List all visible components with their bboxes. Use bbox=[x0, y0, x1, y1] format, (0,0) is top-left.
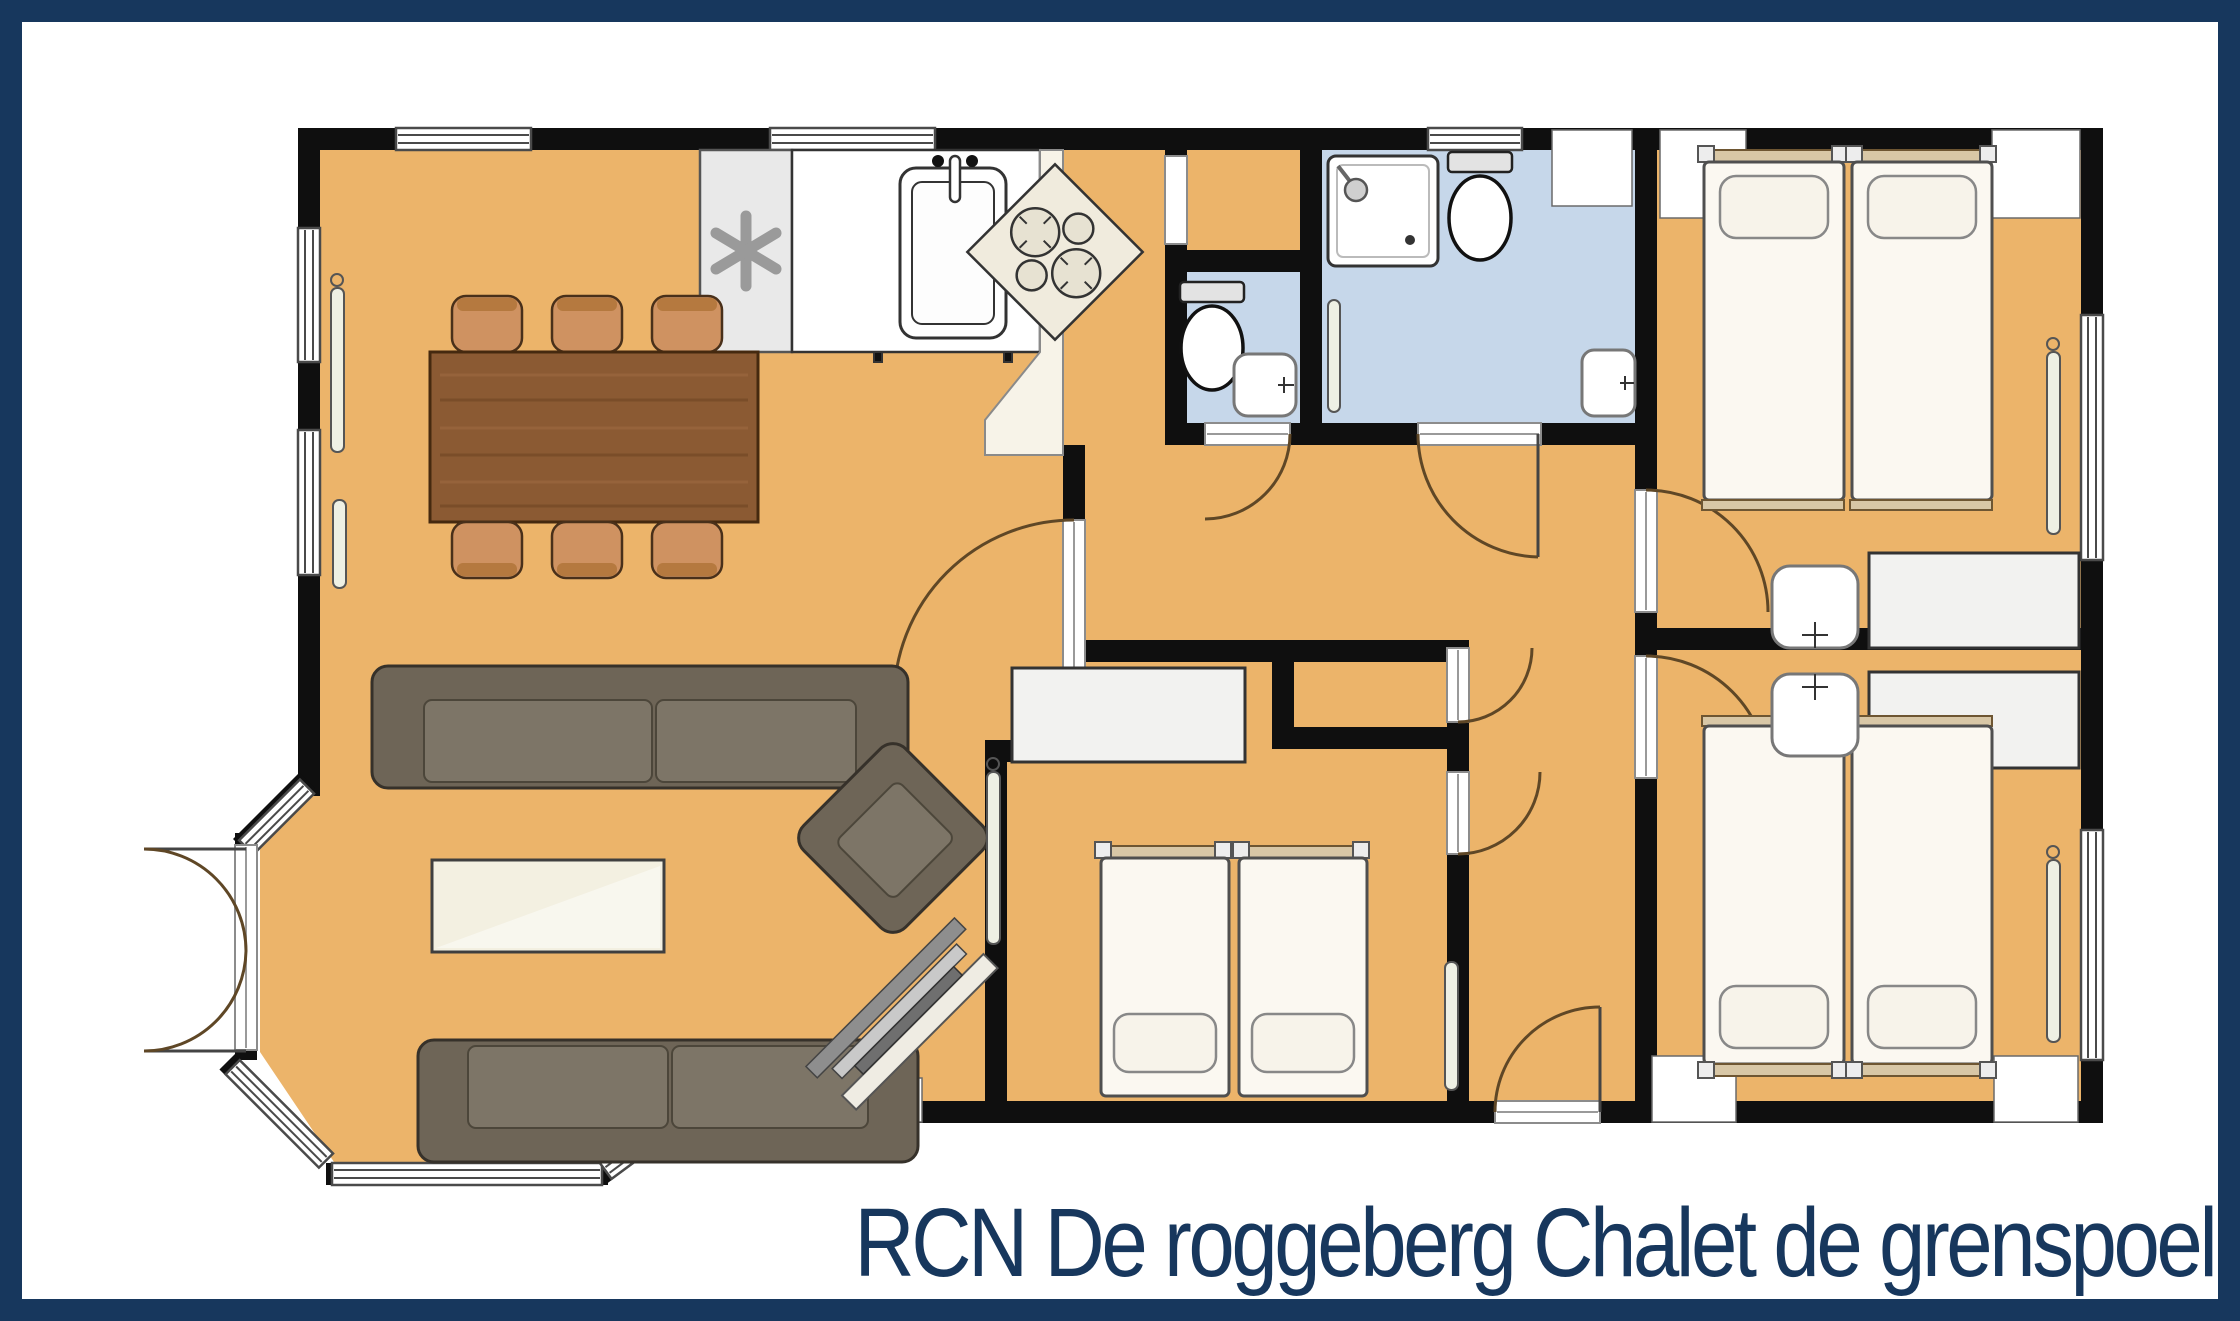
window-top-2 bbox=[770, 128, 935, 150]
inset-bedroom2-right bbox=[1994, 1056, 2078, 1122]
radiator bbox=[2047, 352, 2060, 534]
radiator bbox=[987, 772, 1000, 944]
floor-plan-drawing bbox=[0, 0, 2240, 1321]
bed bbox=[1233, 842, 1369, 1096]
bed bbox=[1698, 146, 1848, 510]
dining-chairs-top bbox=[452, 296, 722, 352]
bed bbox=[1698, 716, 1848, 1078]
bathroom-radiator bbox=[1328, 300, 1340, 412]
dining-chairs-bottom bbox=[452, 522, 722, 578]
floor-plan-page: RCN De roggeberg Chalet de grenspoel bbox=[0, 0, 2240, 1321]
bed bbox=[1846, 146, 1996, 510]
dining-table bbox=[430, 352, 758, 522]
wardrobe bbox=[1869, 553, 2079, 648]
window-right-bedroom1 bbox=[2081, 315, 2103, 560]
toilet2-tank bbox=[1448, 152, 1512, 172]
bathroom-washbasin bbox=[1582, 350, 1635, 416]
radiator bbox=[333, 500, 346, 588]
inset-bedroom1-right bbox=[1992, 130, 2080, 218]
window-bathroom bbox=[1428, 128, 1522, 150]
bed bbox=[1095, 842, 1231, 1096]
window-left-2 bbox=[298, 430, 320, 575]
wardrobe bbox=[1012, 668, 1245, 762]
inset-hall-top bbox=[1552, 130, 1632, 206]
radiator bbox=[331, 288, 344, 452]
plan-title: RCN De roggeberg Chalet de grenspoel bbox=[854, 1187, 2214, 1299]
corner-washbasin bbox=[1234, 354, 1296, 416]
radiator bbox=[1445, 962, 1458, 1090]
bed bbox=[1846, 716, 1996, 1078]
window-top-1 bbox=[396, 128, 531, 150]
radiator bbox=[2047, 860, 2060, 1042]
counter-leg bbox=[1004, 352, 1012, 362]
window-left-1 bbox=[298, 228, 320, 362]
window-right-bedroom2 bbox=[2081, 830, 2103, 1060]
storage-opening bbox=[1165, 156, 1187, 244]
toilet-tank bbox=[1180, 282, 1244, 302]
toilet2-bowl bbox=[1449, 176, 1511, 260]
sofa-large bbox=[372, 666, 908, 788]
bay-window-south bbox=[332, 1163, 602, 1185]
french-doors bbox=[144, 845, 257, 1051]
counter-leg bbox=[874, 352, 882, 362]
shower bbox=[1328, 156, 1438, 266]
dining-set bbox=[430, 296, 758, 578]
